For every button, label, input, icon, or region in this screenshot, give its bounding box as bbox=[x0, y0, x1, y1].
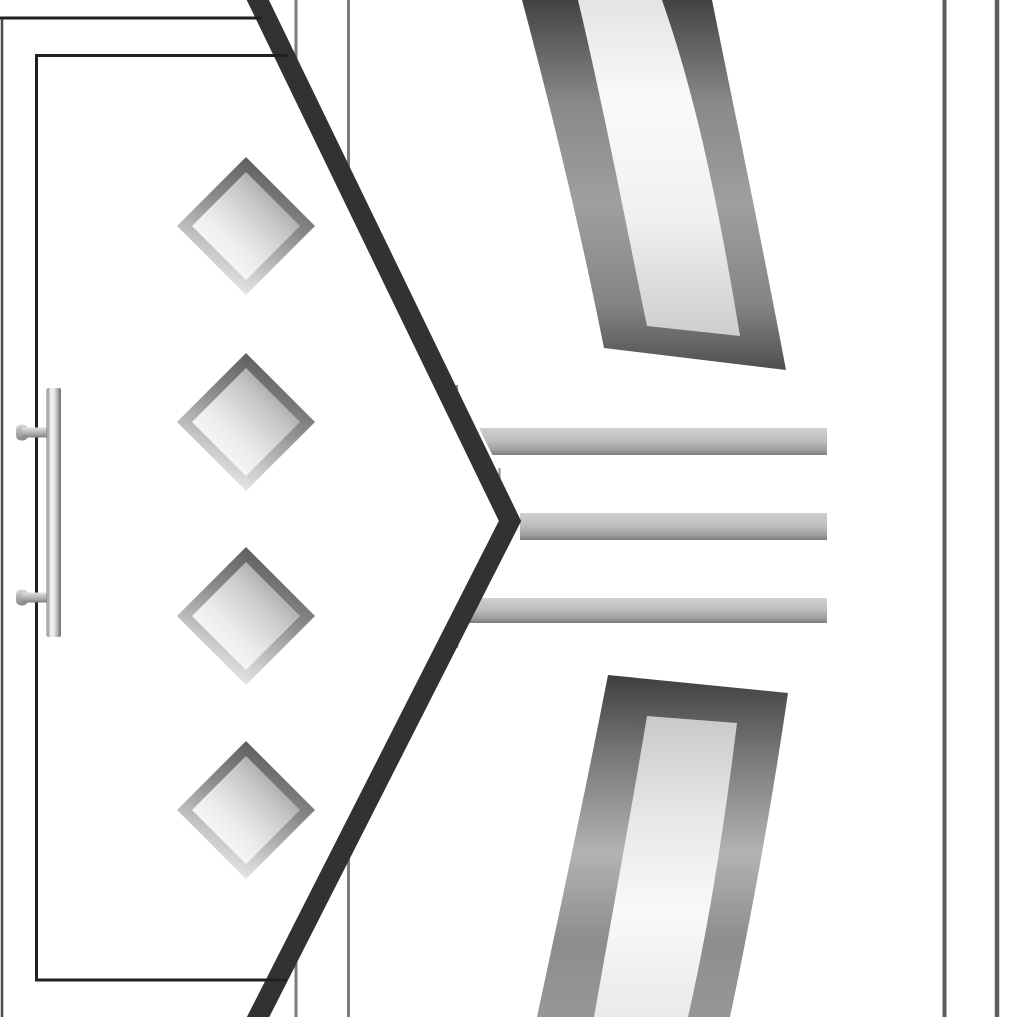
metallic-stripe-1 bbox=[479, 428, 827, 455]
metallic-stripe-2 bbox=[520, 513, 827, 540]
metallic-stripe-3 bbox=[466, 598, 828, 623]
panel-frame-top bbox=[35, 54, 288, 57]
doors-illustration bbox=[0, 0, 1018, 1017]
right-door-frame-line-e bbox=[943, 0, 947, 1017]
panel-frame-left bbox=[35, 54, 38, 982]
door-top-edge bbox=[0, 17, 262, 20]
door-left-edge bbox=[1, 19, 4, 1017]
door-designs-image bbox=[0, 0, 1018, 1017]
handle-bar-edge-line bbox=[48, 388, 50, 637]
left-door-panel bbox=[0, 0, 510, 1017]
right-door-frame-line-f bbox=[995, 0, 1000, 1017]
panel-frame-bottom bbox=[35, 979, 287, 982]
